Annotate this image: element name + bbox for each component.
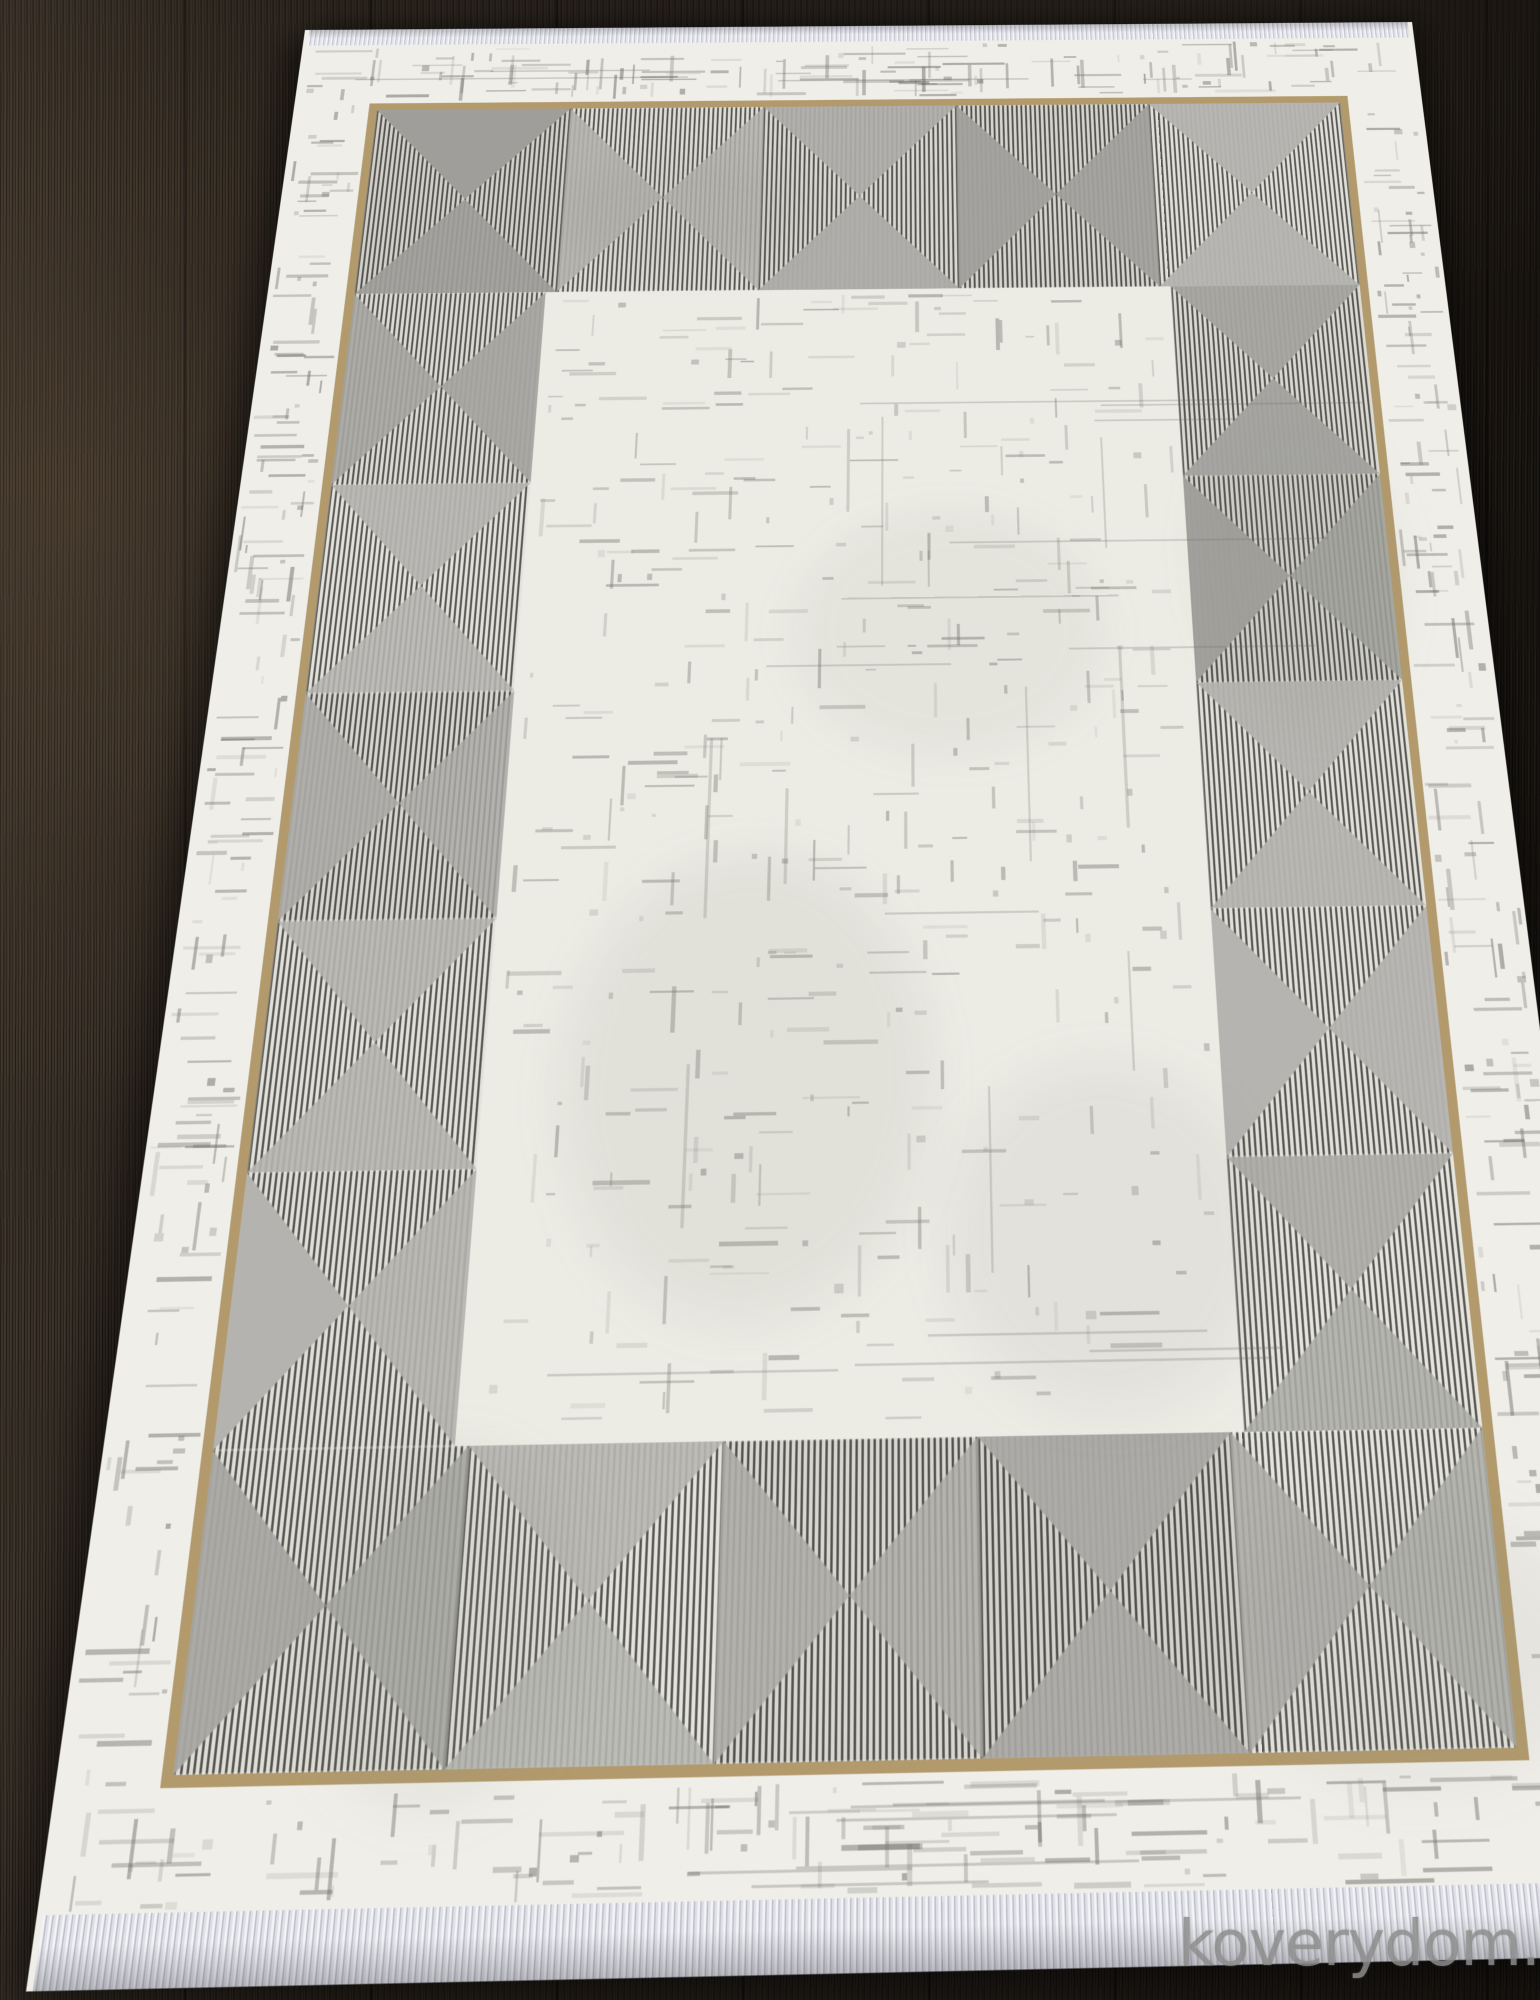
distress-mark <box>895 61 915 64</box>
distress-mark <box>1268 1837 1307 1842</box>
distress-mark <box>136 1860 157 1864</box>
distress-mark <box>590 910 598 916</box>
distress-mark <box>351 105 355 113</box>
distress-mark <box>298 255 325 258</box>
distress-mark <box>1490 1775 1513 1780</box>
distress-mark <box>286 274 328 277</box>
distress-mark <box>756 721 765 723</box>
distress-mark <box>1402 272 1422 274</box>
distress-mark <box>1160 931 1167 939</box>
distress-mark <box>1097 836 1107 840</box>
distress-mark <box>863 1780 944 1785</box>
distress-mark <box>1162 68 1167 92</box>
distress-mark <box>883 874 887 904</box>
distress-mark <box>1233 42 1238 71</box>
distress-mark <box>1241 55 1246 78</box>
distress-mark <box>1392 303 1416 306</box>
distress-mark <box>1449 917 1456 953</box>
distress-mark <box>1445 952 1450 966</box>
distress-mark <box>1432 489 1446 492</box>
distress-mark <box>555 349 580 352</box>
distress-mark <box>971 1882 1041 1888</box>
distress-mark <box>708 815 733 817</box>
distress-mark <box>573 73 577 90</box>
distress-mark <box>782 388 812 391</box>
distress-mark <box>273 294 312 297</box>
distress-mark <box>1267 1789 1285 1795</box>
distress-mark <box>1403 549 1426 552</box>
distress-mark <box>421 66 429 72</box>
distress-mark <box>1216 1839 1223 1844</box>
distress-mark <box>1140 55 1145 59</box>
distress-mark <box>1512 1446 1517 1459</box>
band-square <box>1227 1154 1483 1432</box>
distress-mark <box>892 355 894 377</box>
distress-mark <box>904 410 940 413</box>
distress-mark <box>239 611 285 615</box>
distress-mark <box>691 360 699 365</box>
distress-mark <box>927 333 966 336</box>
distress-mark <box>513 1029 550 1033</box>
distress-mark <box>571 85 574 96</box>
distress-mark <box>1044 919 1061 922</box>
distress-mark <box>1141 845 1145 853</box>
distress-mark <box>215 889 247 893</box>
distress-mark <box>1524 1531 1540 1537</box>
distress-mark <box>686 1788 691 1850</box>
distress-mark <box>1050 58 1054 86</box>
distress-mark <box>159 1306 194 1310</box>
distress-mark <box>583 711 613 714</box>
distress-mark <box>98 1809 156 1814</box>
distress-mark <box>886 1416 921 1420</box>
distress-mark <box>918 1207 922 1249</box>
distress-mark <box>1524 1104 1530 1118</box>
distress-mark <box>267 1801 272 1806</box>
distress-mark <box>1406 553 1447 556</box>
distress-mark <box>923 925 968 929</box>
distress-mark <box>274 769 277 777</box>
distress-mark <box>948 1820 952 1831</box>
distress-mark <box>1454 571 1460 585</box>
distress-mark <box>207 1078 215 1086</box>
distress-mark <box>711 59 742 62</box>
distress-mark <box>299 215 338 217</box>
distress-mark <box>1535 1484 1540 1493</box>
distress-mark <box>1429 543 1432 552</box>
distress-mark <box>570 372 616 375</box>
distress-mark <box>763 68 767 93</box>
distress-mark <box>178 1436 185 1441</box>
distress-mark <box>871 46 873 64</box>
distress-mark <box>738 67 741 88</box>
distress-mark <box>78 1733 125 1738</box>
distress-mark <box>154 1333 159 1345</box>
distress-mark <box>868 431 873 435</box>
distress-mark <box>376 49 380 58</box>
distress-mark <box>1511 1051 1528 1054</box>
distress-mark <box>334 112 339 120</box>
distress-mark <box>880 71 896 73</box>
distress-mark <box>272 416 289 419</box>
distress-mark <box>894 404 898 416</box>
distress-mark <box>290 638 299 641</box>
distress-mark <box>508 971 562 975</box>
distress-mark <box>902 1377 935 1382</box>
distress-mark <box>106 1457 112 1470</box>
distress-mark <box>652 814 657 818</box>
distress-mark <box>1488 1156 1495 1181</box>
distress-mark <box>253 554 304 557</box>
distress-mark <box>1429 449 1459 451</box>
distress-mark <box>315 72 362 75</box>
distress-mark <box>950 861 954 882</box>
distress-mark <box>109 1660 172 1666</box>
distress-mark <box>1413 664 1454 667</box>
distress-mark <box>548 405 551 412</box>
distress-mark <box>780 731 783 741</box>
distress-mark <box>308 480 316 483</box>
distress-mark <box>290 595 296 616</box>
distress-mark <box>1203 81 1211 84</box>
distress-mark <box>310 172 359 175</box>
distress-mark <box>294 212 299 216</box>
distress-mark <box>1358 70 1397 72</box>
distress-mark <box>274 267 281 289</box>
distress-mark <box>1078 865 1119 869</box>
distress-mark <box>1417 192 1425 195</box>
distress-mark <box>280 634 287 657</box>
distress-mark <box>661 407 709 410</box>
distress-mark <box>1405 493 1410 504</box>
distress-mark <box>620 807 625 811</box>
distress-mark <box>606 584 659 587</box>
distress-mark <box>1046 325 1050 345</box>
distress-mark <box>84 1770 90 1786</box>
distress-mark <box>1378 315 1417 319</box>
distress-mark <box>830 498 833 505</box>
distress-mark <box>231 857 251 860</box>
distress-mark <box>1421 311 1444 313</box>
distress-mark <box>1144 73 1146 83</box>
distress-mark <box>209 778 218 810</box>
distress-mark <box>1367 113 1375 115</box>
distress-mark <box>1067 834 1072 842</box>
distress-mark <box>192 920 202 924</box>
distress-mark <box>145 1383 197 1387</box>
distress-mark <box>462 1819 514 1825</box>
distress-mark <box>1406 275 1409 282</box>
distress-mark <box>1415 394 1421 400</box>
distress-mark <box>1517 1480 1532 1483</box>
distress-mark <box>1485 998 1510 1002</box>
distress-mark <box>1493 1222 1540 1225</box>
distress-mark <box>886 811 890 821</box>
distress-mark <box>1292 49 1333 51</box>
distress-mark <box>1016 944 1039 948</box>
distress-mark <box>125 1506 133 1527</box>
distress-mark <box>1345 1878 1434 1883</box>
distress-mark <box>1141 1856 1181 1861</box>
distress-mark <box>270 345 278 350</box>
distress-mark <box>1398 1839 1406 1876</box>
distress-mark <box>198 952 235 956</box>
distress-mark <box>1029 418 1034 424</box>
distress-mark <box>261 445 305 449</box>
distress-mark <box>299 1890 332 1895</box>
distress-mark <box>705 609 730 613</box>
distress-mark <box>1515 1131 1540 1134</box>
distress-mark <box>772 769 786 771</box>
distress-mark <box>280 560 285 564</box>
distress-mark <box>273 340 320 344</box>
distress-mark <box>968 65 972 87</box>
distress-mark <box>856 1321 860 1333</box>
distress-mark <box>204 802 230 805</box>
distress-mark <box>105 1782 127 1787</box>
distress-mark <box>1466 1115 1491 1118</box>
distress-mark <box>187 1100 235 1105</box>
distress-mark <box>471 53 474 61</box>
distress-mark <box>179 1252 221 1256</box>
distress-mark <box>838 53 844 59</box>
distress-mark <box>1085 933 1091 941</box>
distress-mark <box>319 380 323 392</box>
distress-mark <box>904 812 908 849</box>
distress-mark <box>1394 129 1402 134</box>
distress-mark <box>985 496 989 512</box>
distress-mark <box>1026 336 1035 338</box>
distress-mark <box>1477 801 1484 834</box>
distress-mark <box>185 991 237 994</box>
distress-mark <box>776 73 811 75</box>
distress-mark <box>1509 1502 1540 1506</box>
distress-mark <box>1269 82 1273 91</box>
distress-mark <box>1435 855 1442 862</box>
distress-mark <box>1198 86 1221 88</box>
distress-mark <box>618 574 622 582</box>
distress-mark <box>745 678 749 700</box>
distress-mark <box>148 1433 201 1437</box>
band-square <box>1149 102 1360 286</box>
distress-mark <box>192 1202 202 1251</box>
distress-mark <box>999 320 1003 343</box>
distress-mark <box>568 71 598 74</box>
distress-mark <box>657 771 689 774</box>
distress-mark <box>969 767 989 770</box>
distress-mark <box>701 1797 759 1802</box>
distress-mark <box>204 1184 210 1193</box>
distress-mark <box>1457 704 1462 707</box>
distress-mark <box>782 59 785 89</box>
distress-mark <box>1164 887 1168 893</box>
distress-mark <box>802 445 841 447</box>
distress-mark <box>695 347 731 351</box>
distress-mark <box>769 1355 800 1360</box>
distress-mark <box>909 294 943 297</box>
distress-mark <box>966 1387 972 1395</box>
distress-mark <box>271 371 298 374</box>
distress-mark <box>755 545 793 548</box>
distress-mark <box>1418 537 1426 541</box>
distress-mark <box>172 1853 195 1857</box>
distress-mark <box>809 858 842 862</box>
distress-mark <box>572 1892 643 1897</box>
distress-mark <box>580 539 620 543</box>
distress-mark <box>486 90 526 92</box>
distress-mark <box>1501 1039 1508 1046</box>
distress-mark <box>709 1799 714 1852</box>
distress-mark <box>412 64 462 66</box>
distress-mark <box>1375 169 1400 171</box>
distress-mark <box>715 1805 730 1808</box>
distress-mark <box>1131 1830 1208 1836</box>
distress-mark <box>1456 467 1463 503</box>
distress-mark <box>932 973 960 976</box>
distress-mark <box>300 194 330 197</box>
distress-mark <box>1145 337 1163 340</box>
distress-mark <box>561 417 573 420</box>
distress-mark <box>1330 61 1334 78</box>
distress-mark <box>1182 85 1188 88</box>
distress-mark <box>1377 42 1382 65</box>
distress-mark <box>918 844 933 847</box>
distress-mark <box>923 940 927 959</box>
distress-mark <box>1425 783 1448 787</box>
distress-mark <box>1051 300 1081 302</box>
distress-mark <box>1001 867 1006 880</box>
distress-mark <box>322 184 332 186</box>
band-square <box>355 109 571 294</box>
distress-mark <box>1309 81 1331 83</box>
distress-mark <box>1256 1821 1276 1826</box>
distress-mark <box>1099 92 1123 94</box>
distress-mark <box>1133 453 1141 458</box>
distress-mark <box>183 946 240 950</box>
distress-mark <box>306 370 312 385</box>
distress-mark <box>1001 439 1030 442</box>
distress-mark <box>259 578 304 580</box>
distress-mark <box>919 94 956 96</box>
distress-mark <box>208 840 218 843</box>
distress-mark <box>489 1385 499 1394</box>
distress-mark <box>1476 1191 1530 1196</box>
distress-mark <box>1437 526 1453 530</box>
distress-mark <box>1448 404 1457 410</box>
distress-mark <box>1516 1536 1540 1540</box>
distress-mark <box>1513 1351 1528 1356</box>
distress-mark <box>868 302 907 305</box>
distress-mark <box>598 550 605 557</box>
distress-mark <box>761 323 804 326</box>
distress-mark <box>1360 1874 1378 1879</box>
distress-mark <box>1323 1814 1386 1820</box>
distress-mark <box>1478 663 1486 670</box>
distress-mark <box>832 1787 836 1793</box>
distress-mark <box>298 180 338 183</box>
distress-mark <box>1400 462 1411 464</box>
distress-mark <box>755 670 758 681</box>
distress-mark <box>575 404 586 407</box>
distress-mark <box>748 393 790 396</box>
distress-mark <box>370 60 376 86</box>
distress-mark <box>1215 89 1276 92</box>
distress-mark <box>1076 65 1079 84</box>
distress-mark <box>1388 418 1424 421</box>
distress-mark <box>540 499 556 502</box>
distress-mark <box>833 308 878 311</box>
distress-mark <box>196 1114 212 1117</box>
distress-mark <box>941 295 972 297</box>
distress-mark <box>963 412 966 438</box>
distress-mark <box>317 145 342 147</box>
distress-mark <box>1310 1799 1318 1844</box>
distress-mark <box>641 58 684 61</box>
distress-mark <box>1269 45 1294 47</box>
distress-mark <box>809 355 855 358</box>
distress-mark <box>553 704 580 707</box>
distress-mark <box>493 1795 515 1801</box>
distress-mark <box>583 835 591 840</box>
distress-mark <box>1144 1883 1205 1887</box>
distress-mark <box>1422 1838 1490 1843</box>
distress-mark <box>1125 1850 1165 1855</box>
distress-mark <box>266 1873 338 1880</box>
distress-mark <box>249 490 273 494</box>
distress-mark <box>593 487 609 489</box>
distress-mark <box>215 773 255 776</box>
distress-mark <box>589 1332 593 1344</box>
distress-mark <box>586 1244 600 1248</box>
distress-mark <box>1410 476 1414 484</box>
distress-mark <box>980 68 983 92</box>
distress-mark <box>902 1873 906 1880</box>
distress-mark <box>120 1470 161 1475</box>
distress-mark <box>697 317 743 320</box>
distress-mark <box>340 89 345 100</box>
distress-mark <box>261 676 264 684</box>
distress-mark <box>804 309 839 311</box>
distress-mark <box>158 1214 164 1233</box>
distress-mark <box>69 1876 77 1911</box>
distress-mark <box>1095 1828 1099 1865</box>
distress-mark <box>1126 580 1133 584</box>
distress-mark <box>895 890 920 893</box>
distress-mark <box>995 762 1010 765</box>
distress-mark <box>1478 1247 1484 1258</box>
distress-mark <box>502 59 541 61</box>
distress-mark <box>939 312 965 314</box>
distress-mark <box>307 85 323 87</box>
distress-mark <box>811 301 833 303</box>
distress-mark <box>671 487 716 490</box>
distress-mark <box>1483 1072 1532 1076</box>
distress-mark <box>1050 388 1088 390</box>
distress-mark <box>523 1023 542 1027</box>
distress-mark <box>566 717 603 720</box>
distress-mark <box>589 1246 592 1257</box>
distress-mark <box>274 698 281 730</box>
distress-mark <box>1486 1059 1494 1067</box>
distress-mark <box>449 56 455 85</box>
distress-mark <box>1133 967 1152 971</box>
distress-mark <box>1072 861 1077 881</box>
distress-mark <box>175 1873 210 1877</box>
distress-mark <box>659 336 688 339</box>
distress-mark <box>319 140 345 142</box>
distress-mark <box>918 56 968 58</box>
distress-mark <box>81 1812 91 1857</box>
